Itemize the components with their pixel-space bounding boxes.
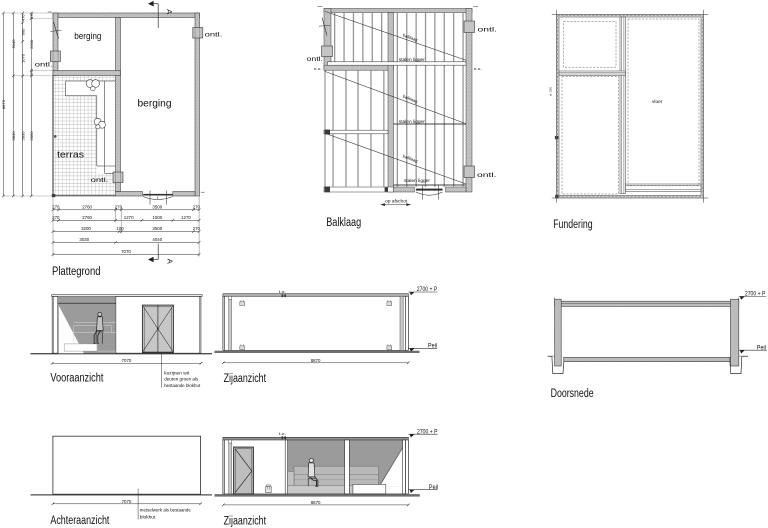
- svg-text:5830: 5830: [20, 131, 25, 141]
- svg-text:kozijnen wit: kozijnen wit: [164, 370, 190, 376]
- svg-text:st. 220: st. 220: [549, 87, 553, 96]
- svg-text:Plattegrond: Plattegrond: [52, 266, 101, 278]
- svg-text:vloer: vloer: [652, 99, 663, 105]
- svg-text:Peil: Peil: [757, 345, 766, 351]
- svg-text:270: 270: [52, 215, 60, 220]
- svg-text:7070: 7070: [122, 499, 132, 504]
- svg-text:Zijaanzicht: Zijaanzicht: [224, 373, 267, 385]
- svg-text:berging: berging: [138, 98, 172, 109]
- svg-text:ontl.: ontl.: [91, 177, 109, 184]
- svg-text:470: 470: [20, 14, 25, 21]
- svg-text:270: 270: [29, 69, 34, 76]
- svg-text:270: 270: [193, 226, 201, 231]
- svg-text:t.o.: t.o.: [279, 289, 286, 294]
- svg-text:2700 + P: 2700 + P: [417, 287, 438, 293]
- svg-text:2760: 2760: [82, 205, 92, 210]
- svg-text:terras: terras: [57, 149, 84, 160]
- svg-text:3500: 3500: [152, 205, 162, 210]
- svg-text:Peil: Peil: [429, 485, 438, 491]
- svg-text:8870: 8870: [1, 99, 6, 109]
- svg-text:4040: 4040: [152, 237, 162, 242]
- svg-text:deuren groen als: deuren groen als: [164, 377, 199, 383]
- svg-text:270: 270: [193, 205, 201, 210]
- svg-text:ontl.: ontl.: [205, 32, 223, 39]
- svg-text:7070: 7070: [121, 249, 131, 254]
- svg-text:ontl.: ontl.: [35, 61, 53, 68]
- svg-text:8870: 8870: [311, 358, 321, 363]
- svg-text:stalen ligger: stalen ligger: [399, 57, 426, 62]
- svg-text:5830: 5830: [11, 131, 16, 141]
- svg-text:Peil: Peil: [428, 344, 437, 350]
- svg-text:ontl.: ontl.: [478, 27, 498, 34]
- svg-text:Vooraanzicht: Vooraanzicht: [50, 373, 104, 385]
- svg-text:t.o.: t.o.: [279, 431, 286, 436]
- svg-text:2500: 2500: [29, 39, 34, 49]
- svg-text:n.o.: n.o.: [474, 66, 482, 71]
- svg-text:Zijaanzicht: Zijaanzicht: [224, 516, 267, 528]
- svg-text:3030: 3030: [79, 237, 89, 242]
- svg-text:2700 + P: 2700 + P: [417, 429, 438, 435]
- svg-text:3040: 3040: [11, 39, 16, 49]
- svg-text:op afschot: op afschot: [385, 198, 408, 203]
- svg-text:Fundering: Fundering: [553, 219, 593, 231]
- svg-text:2760: 2760: [82, 215, 92, 220]
- svg-text:ontl.: ontl.: [477, 172, 497, 179]
- svg-text:Balklaag: Balklaag: [326, 217, 361, 229]
- svg-text:7070: 7070: [122, 358, 132, 363]
- svg-text:8870: 8870: [311, 500, 321, 505]
- svg-text:1270: 1270: [181, 215, 191, 220]
- svg-text:stalen ligger: stalen ligger: [399, 119, 426, 124]
- svg-text:metselwerk als bestaande: metselwerk als bestaande: [140, 508, 191, 514]
- svg-text:2700 + P: 2700 + P: [745, 292, 766, 298]
- svg-text:3500: 3500: [152, 226, 162, 231]
- svg-text:A: A: [165, 9, 174, 14]
- svg-text:Achteraanzicht: Achteraanzicht: [50, 515, 110, 527]
- svg-text:berging: berging: [74, 31, 101, 41]
- svg-text:3200: 3200: [81, 226, 91, 231]
- svg-text:1500: 1500: [153, 215, 163, 220]
- svg-text:270: 270: [29, 12, 34, 19]
- svg-text:bestaande blokhut: bestaande blokhut: [164, 383, 201, 389]
- svg-text:Doorsnede: Doorsnede: [551, 388, 594, 400]
- svg-text:stalen ligger: stalen ligger: [404, 178, 431, 183]
- svg-text:1270: 1270: [124, 215, 134, 220]
- svg-text:5060: 5060: [29, 131, 34, 141]
- svg-text:n.o.: n.o.: [314, 66, 322, 71]
- svg-text:blokhut: blokhut: [140, 515, 156, 521]
- svg-text:ontl.: ontl.: [307, 56, 324, 63]
- svg-text:1670: 1670: [20, 53, 25, 63]
- svg-text:270: 270: [115, 205, 123, 210]
- svg-text:100: 100: [116, 226, 124, 231]
- svg-text:270: 270: [52, 205, 60, 210]
- svg-text:900: 900: [20, 28, 25, 35]
- svg-text:A: A: [165, 259, 174, 264]
